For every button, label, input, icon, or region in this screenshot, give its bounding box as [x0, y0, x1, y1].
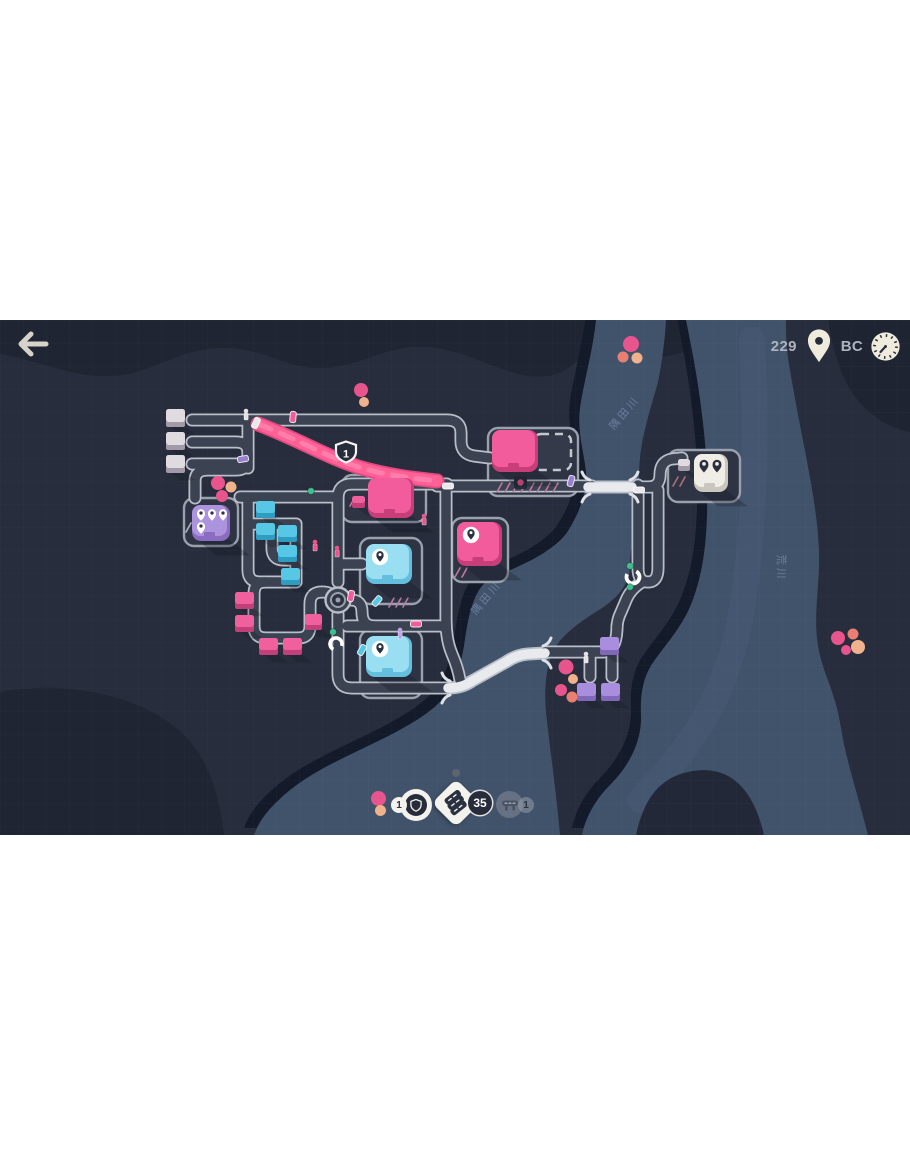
map-dot-peach: [359, 397, 369, 407]
motorway-marker-number: 1: [343, 449, 349, 461]
map-dot-pink: [623, 336, 639, 352]
house-purple: [601, 683, 620, 701]
map-dot-pink: [831, 631, 845, 645]
car-pink: [347, 590, 355, 602]
destination-building: [192, 505, 230, 541]
destination-building: [366, 544, 412, 584]
car-purple: [237, 455, 249, 463]
house-cyan: [256, 501, 275, 518]
map-dot-peach: [568, 674, 578, 684]
expansion-slot-dashed: [534, 434, 571, 470]
road-tile-count: 35: [468, 791, 492, 815]
road-tile-counter: 35: [432, 779, 480, 827]
map-dot-peach: [851, 640, 865, 654]
house-pink: [235, 592, 254, 609]
map-dot-peach: [226, 482, 237, 493]
motorway-marker-badge: 1: [336, 442, 356, 463]
house-pink: [283, 638, 302, 655]
hud-pin-dot-pink: [371, 791, 386, 806]
top-right-hud: 229 BC: [771, 329, 901, 363]
map-dot-pink: [841, 645, 851, 655]
car-pink: [411, 621, 422, 627]
hud-pin-dot-peach: [375, 805, 386, 816]
road-tiles-icon: [443, 790, 469, 816]
city-code-label: BC: [841, 338, 863, 355]
tree: [308, 488, 315, 495]
map-dot-pink: [555, 684, 567, 696]
map-dot-salmon: [567, 692, 578, 703]
back-button[interactable]: [13, 329, 53, 359]
house-cyan: [278, 545, 297, 562]
waiting-pin: [335, 546, 340, 557]
house-white: [166, 432, 185, 450]
shield-icon: [405, 794, 427, 816]
waiting-pin: [584, 652, 589, 663]
waiting-pin: [313, 540, 318, 551]
map-dot-pink: [216, 490, 228, 502]
location-pin-icon: [804, 329, 834, 363]
house-cyan: [256, 523, 275, 540]
destination-building: [368, 478, 414, 518]
destination-building: [492, 430, 538, 472]
tree: [330, 629, 337, 636]
map-dot-salmon: [618, 352, 629, 363]
house-white: [166, 409, 185, 427]
waiting-pin: [398, 628, 403, 639]
destination-building: [457, 522, 502, 566]
map-dot-peach: [632, 353, 643, 364]
house-purple: [600, 637, 619, 655]
destination-building: [366, 636, 412, 677]
map-dot-pink: [354, 383, 368, 397]
pin-counter-value: 229: [771, 338, 797, 355]
house-pink: [235, 615, 254, 632]
house-purple: [577, 683, 596, 701]
house-pink: [259, 638, 278, 655]
map-dot-pink: [559, 660, 574, 675]
house-white: [166, 455, 185, 473]
river-label-arakawa: 荒川: [775, 555, 787, 582]
game-viewport[interactable]: 隅田川 隅田川 荒川: [0, 320, 910, 835]
map-dot-salmon: [848, 629, 859, 640]
house-white: [678, 459, 690, 471]
tree: [627, 563, 634, 570]
waiting-pin: [422, 514, 427, 525]
car-white: [443, 483, 454, 489]
map-dot-gray: [452, 769, 460, 777]
tree: [627, 584, 634, 591]
roundabout: [326, 588, 351, 613]
car-white: [634, 487, 645, 493]
waiting-pin: [244, 409, 249, 420]
clock-icon: [870, 331, 901, 362]
arrow-left-icon: [13, 329, 53, 359]
motorway-counter[interactable]: 1: [496, 791, 523, 818]
motorway-icon: [501, 798, 519, 812]
map-dot-pink: [211, 476, 225, 490]
destination-building: [694, 454, 728, 492]
city-map-canvas[interactable]: 隅田川 隅田川 荒川: [0, 320, 910, 835]
motorway-count: 1: [518, 797, 534, 813]
traffic-upgrade-counter[interactable]: 1: [400, 789, 432, 821]
house-cyan: [278, 525, 297, 542]
screenshot-page: 隅田川 隅田川 荒川: [0, 0, 910, 1155]
house-pink: [352, 496, 365, 508]
house-cyan: [281, 568, 300, 585]
traffic-upgrade-count: 1: [391, 797, 407, 813]
car-pink: [290, 411, 297, 422]
house-pink: [305, 614, 322, 630]
